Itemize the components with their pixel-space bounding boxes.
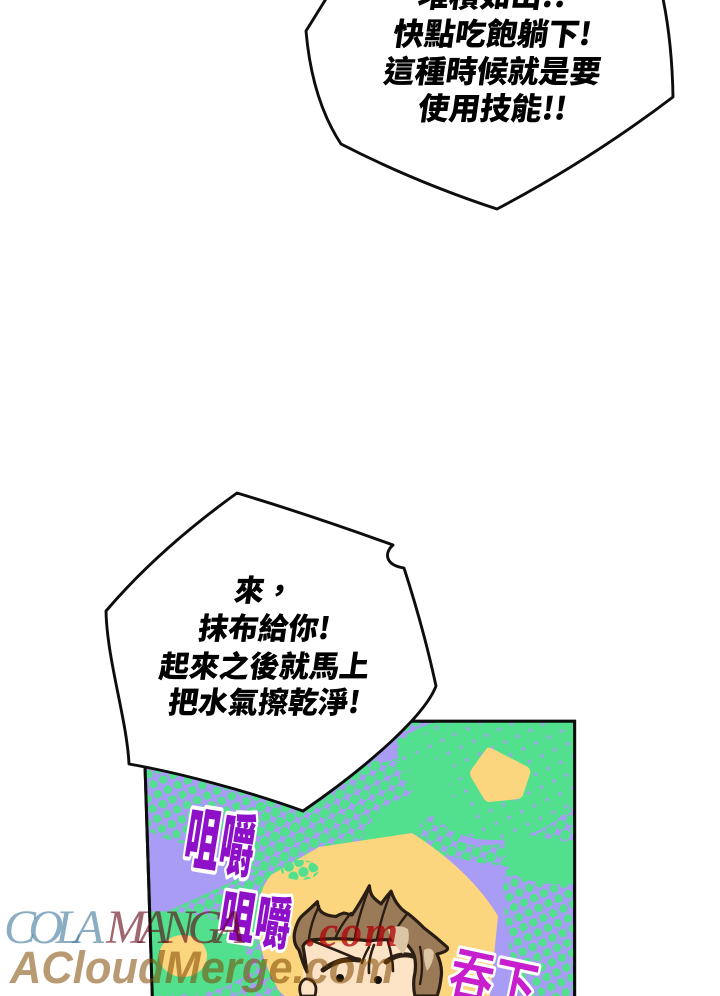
svg-text:ACloudMerge.com: ACloudMerge.com: [9, 942, 394, 993]
